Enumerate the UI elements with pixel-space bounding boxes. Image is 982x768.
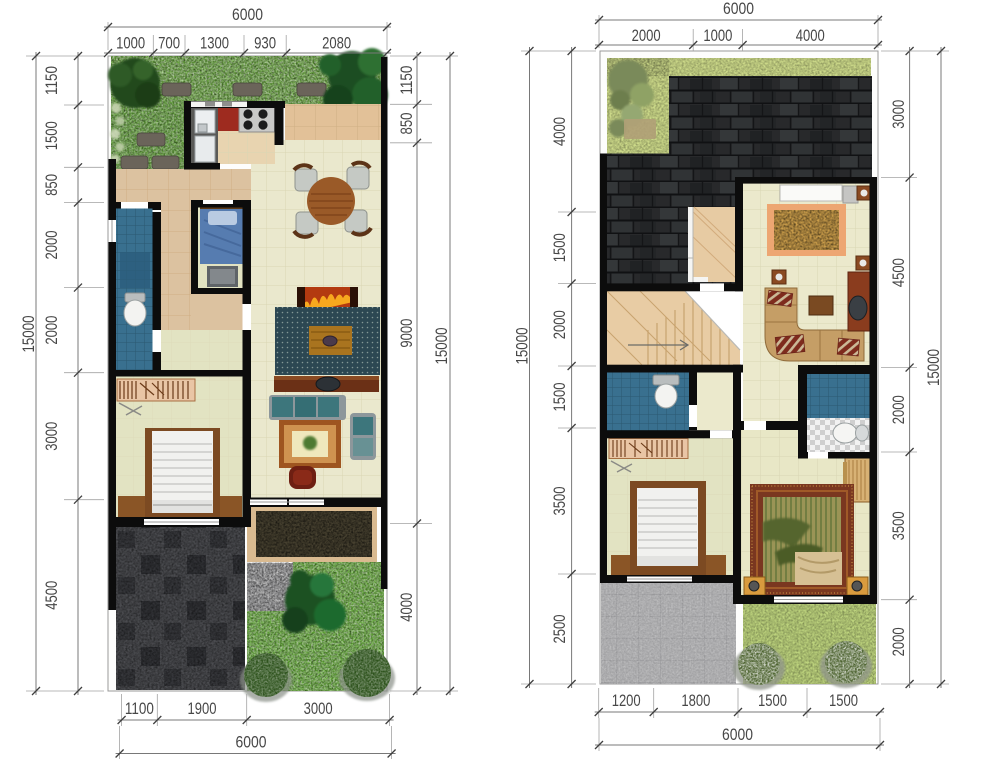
svg-text:850: 850 [397, 113, 416, 135]
svg-text:6000: 6000 [232, 5, 263, 24]
svg-text:1500: 1500 [42, 121, 61, 150]
svg-text:6000: 6000 [236, 733, 267, 752]
svg-text:4500: 4500 [42, 581, 61, 610]
svg-text:2500: 2500 [550, 615, 569, 644]
svg-text:15000: 15000 [19, 316, 38, 353]
svg-text:1150: 1150 [42, 66, 61, 95]
svg-text:1100: 1100 [125, 699, 154, 718]
svg-text:930: 930 [254, 34, 276, 53]
svg-text:15000: 15000 [432, 328, 451, 365]
svg-text:4500: 4500 [889, 258, 908, 287]
svg-text:1900: 1900 [188, 699, 217, 718]
svg-text:2000: 2000 [550, 310, 569, 339]
svg-text:4000: 4000 [397, 593, 416, 622]
svg-text:3000: 3000 [304, 699, 333, 718]
svg-text:1800: 1800 [681, 691, 710, 710]
svg-text:700: 700 [158, 34, 180, 53]
svg-text:2000: 2000 [42, 316, 61, 345]
svg-text:15000: 15000 [924, 349, 943, 386]
svg-text:1500: 1500 [829, 691, 858, 710]
svg-text:3000: 3000 [889, 100, 908, 129]
svg-text:3000: 3000 [42, 422, 61, 451]
svg-text:850: 850 [42, 174, 61, 196]
svg-text:3500: 3500 [550, 487, 569, 516]
svg-text:2080: 2080 [322, 34, 351, 53]
svg-text:1500: 1500 [758, 691, 787, 710]
svg-text:1500: 1500 [550, 383, 569, 412]
svg-text:1000: 1000 [116, 34, 145, 53]
svg-text:2000: 2000 [42, 231, 61, 260]
svg-text:6000: 6000 [722, 725, 753, 744]
svg-text:1300: 1300 [200, 34, 229, 53]
svg-text:2000: 2000 [889, 395, 908, 424]
svg-text:2000: 2000 [889, 627, 908, 656]
svg-text:1200: 1200 [612, 691, 641, 710]
svg-text:4000: 4000 [796, 26, 825, 45]
svg-text:2000: 2000 [632, 26, 661, 45]
svg-text:1500: 1500 [550, 233, 569, 262]
svg-text:6000: 6000 [723, 0, 754, 18]
svg-text:15000: 15000 [513, 328, 532, 365]
svg-text:1150: 1150 [397, 66, 416, 95]
svg-text:3500: 3500 [889, 511, 908, 540]
svg-text:4000: 4000 [550, 117, 569, 146]
svg-text:9000: 9000 [397, 319, 416, 348]
svg-text:1000: 1000 [703, 26, 732, 45]
